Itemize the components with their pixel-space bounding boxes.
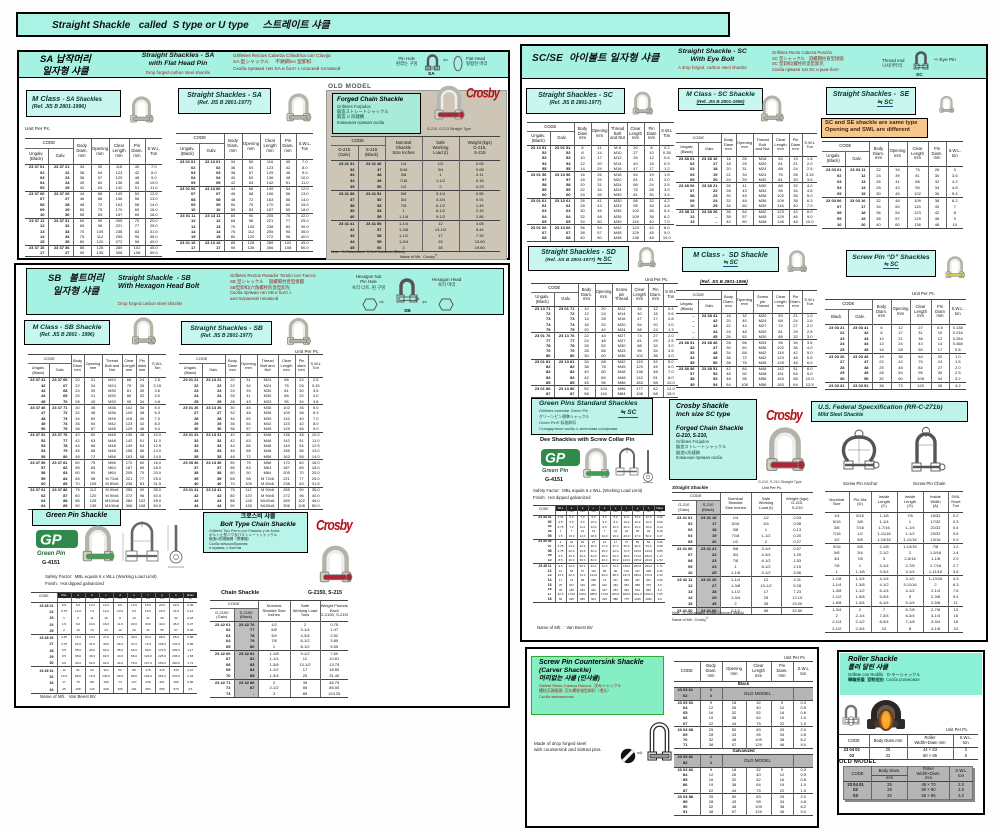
svg-text:GP: GP <box>40 532 63 549</box>
svg-text:GP: GP <box>545 450 566 466</box>
svg-text:Green Pin: Green Pin <box>37 551 66 556</box>
svg-text:Green Pin: Green Pin <box>542 468 569 473</box>
